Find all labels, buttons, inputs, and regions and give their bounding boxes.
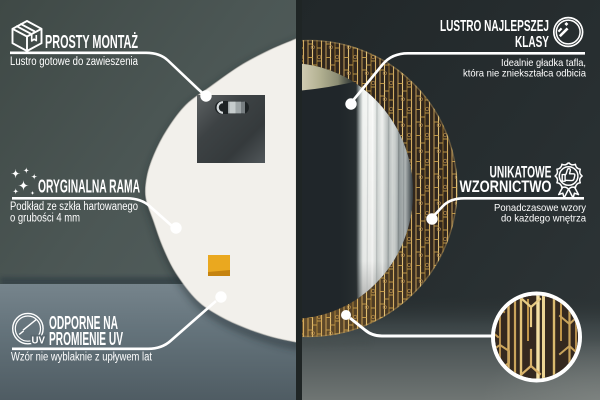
svg-text:WZORNICTWO: WZORNICTWO bbox=[460, 177, 552, 196]
svg-text:Lustro gotowe do zawieszenia: Lustro gotowe do zawieszenia bbox=[10, 56, 138, 68]
svg-text:PROMIENIE UV: PROMIENIE UV bbox=[49, 328, 123, 349]
svg-text:o grubości 4 mm: o grubości 4 mm bbox=[10, 213, 80, 225]
svg-text:Ponadczasowe wzory: Ponadczasowe wzory bbox=[494, 203, 587, 214]
svg-text:Podkład ze szkła hartowanego: Podkład ze szkła hartowanego bbox=[10, 201, 138, 213]
svg-text:PROSTY MONTAŻ: PROSTY MONTAŻ bbox=[45, 31, 138, 52]
svg-text:Idealnie gładka tafla,: Idealnie gładka tafla, bbox=[501, 58, 586, 69]
svg-text:KLASY: KLASY bbox=[515, 34, 549, 51]
svg-text:ORYGINALNA RAMA: ORYGINALNA RAMA bbox=[38, 176, 140, 197]
svg-text:LUSTRO NAJLEPSZEJ: LUSTRO NAJLEPSZEJ bbox=[440, 18, 549, 35]
svg-text:która nie zniekształca odbicia: która nie zniekształca odbicia bbox=[463, 69, 586, 80]
svg-text:UV: UV bbox=[32, 336, 46, 347]
svg-text:Wzór nie wyblaknie z upływem l: Wzór nie wyblaknie z upływem lat bbox=[11, 352, 153, 364]
svg-text:do każdego wnętrza: do każdego wnętrza bbox=[501, 214, 586, 225]
